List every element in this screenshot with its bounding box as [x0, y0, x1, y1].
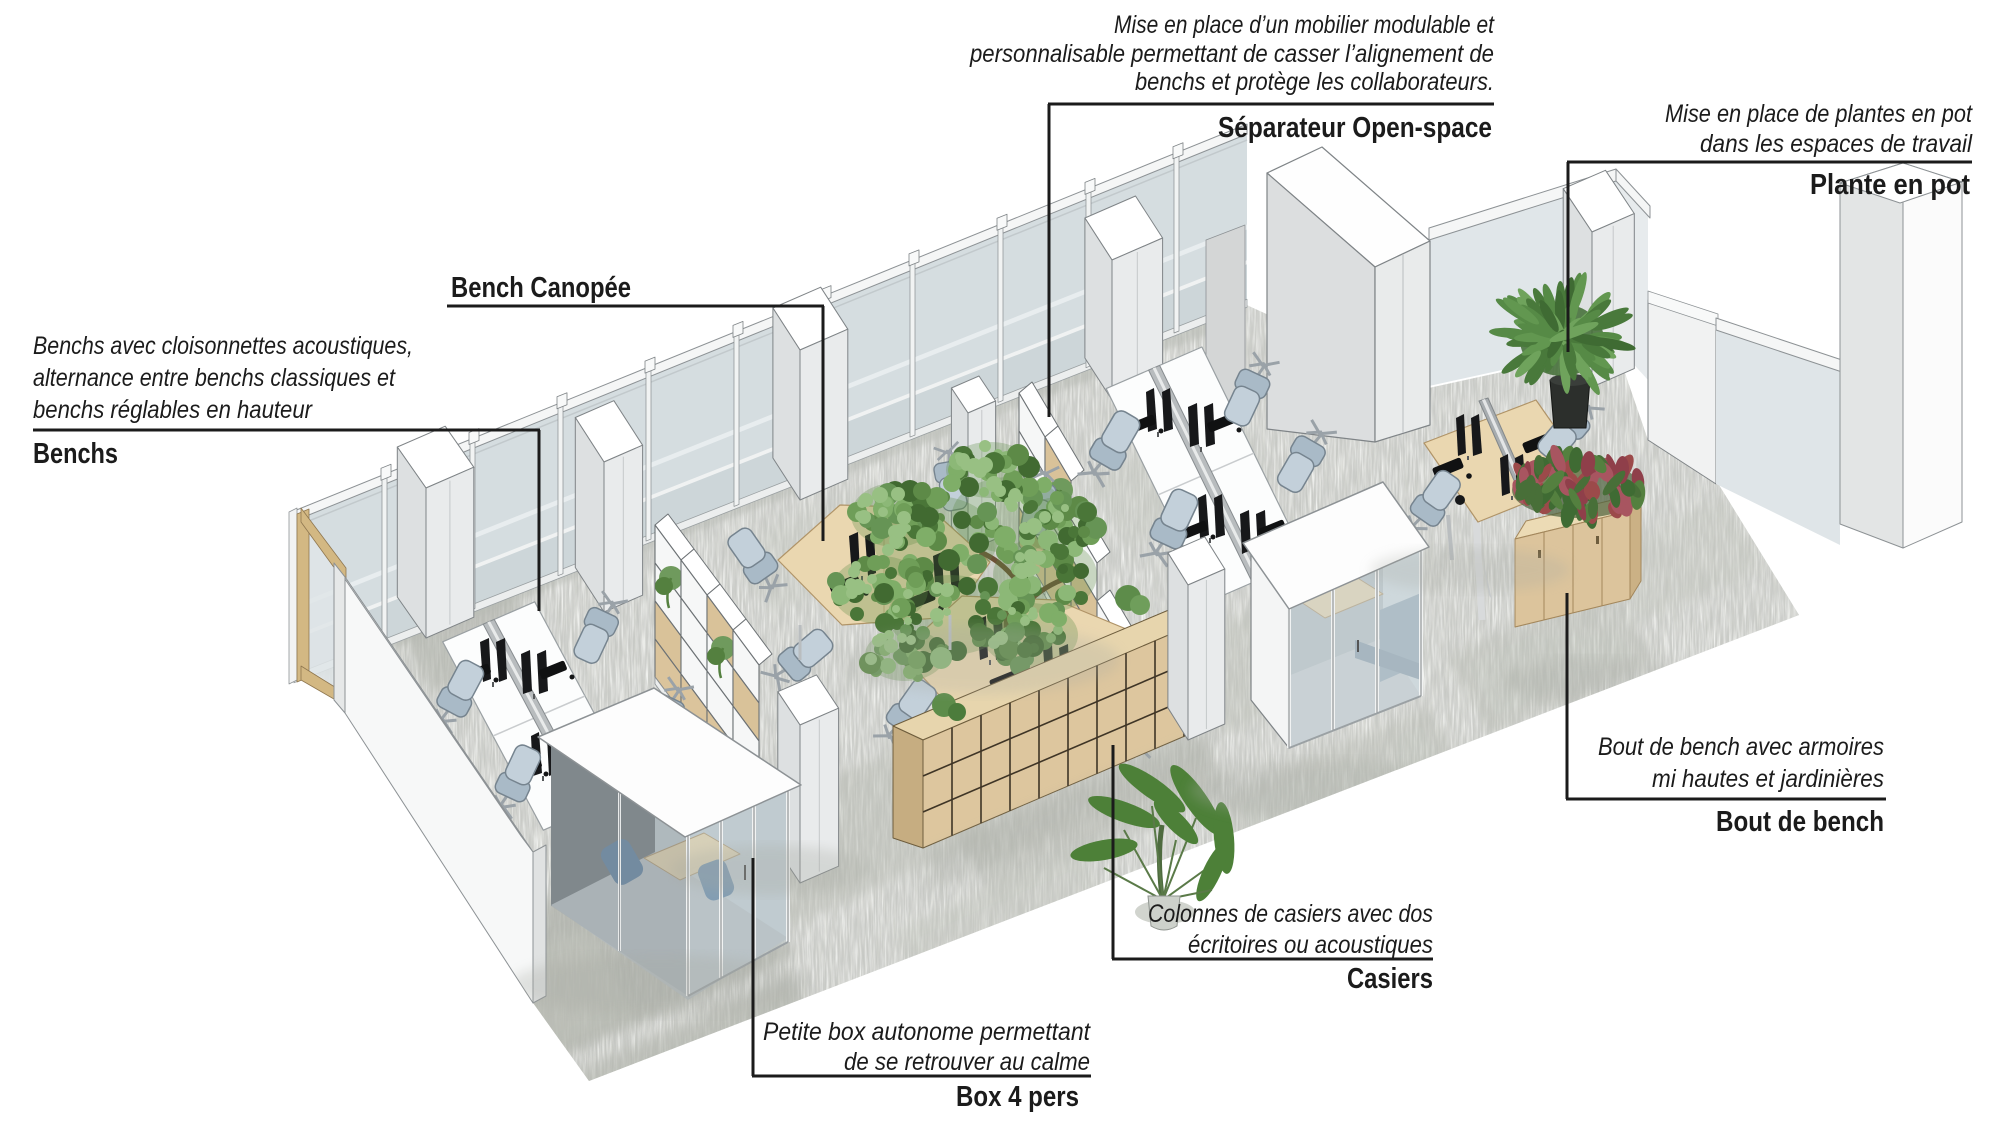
- svg-text:Benchs: Benchs: [33, 438, 118, 470]
- svg-text:benchs réglables en hauteur: benchs réglables en hauteur: [33, 396, 313, 424]
- svg-text:Benchs avec cloisonnettes acou: Benchs avec cloisonnettes acoustiques,: [33, 332, 413, 360]
- svg-text:personnalisable permettant de: personnalisable permettant de casser l’a…: [969, 40, 1494, 68]
- svg-text:écritoires ou acoustiques: écritoires ou acoustiques: [1188, 931, 1433, 959]
- svg-text:Bout de bench avec armoires: Bout de bench avec armoires: [1598, 733, 1884, 761]
- svg-text:Bout de bench: Bout de bench: [1716, 806, 1884, 838]
- svg-text:Box 4 pers: Box 4 pers: [956, 1081, 1079, 1113]
- svg-text:benchs et protège les collabor: benchs et protège les collaborateurs.: [1135, 68, 1494, 96]
- svg-text:Plante en pot: Plante en pot: [1810, 169, 1970, 201]
- svg-text:mi hautes et jardinières: mi hautes et jardinières: [1652, 765, 1884, 793]
- svg-text:Mise en place d’un mobilier mo: Mise en place d’un mobilier modulable et: [1114, 11, 1495, 39]
- svg-text:Séparateur Open-space: Séparateur Open-space: [1218, 112, 1492, 144]
- svg-text:dans les espaces de travail: dans les espaces de travail: [1700, 130, 1973, 158]
- svg-text:Casiers: Casiers: [1347, 963, 1433, 995]
- svg-text:de se retrouver au calme: de se retrouver au calme: [844, 1048, 1090, 1076]
- svg-text:Petite box autonome permettant: Petite box autonome permettant: [763, 1018, 1091, 1046]
- svg-text:alternance entre benchs classi: alternance entre benchs classiques et: [33, 364, 396, 392]
- svg-text:Mise en place de plantes en po: Mise en place de plantes en pot: [1665, 100, 1973, 128]
- svg-text:Colonnes de casiers avec dos: Colonnes de casiers avec dos: [1148, 900, 1433, 928]
- svg-text:Bench Canopée: Bench Canopée: [451, 272, 631, 304]
